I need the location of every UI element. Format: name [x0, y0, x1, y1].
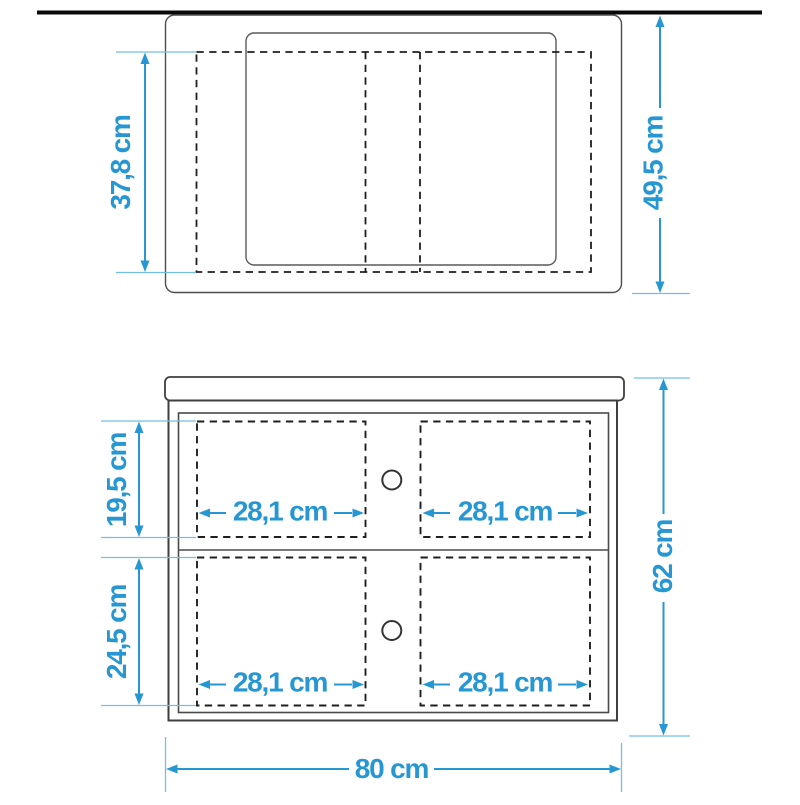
svg-text:37,8 cm: 37,8 cm — [105, 115, 136, 210]
svg-text:28,1 cm: 28,1 cm — [458, 667, 553, 698]
svg-text:28,1 cm: 28,1 cm — [458, 496, 553, 527]
svg-text:80 cm: 80 cm — [355, 753, 429, 784]
svg-text:19,5 cm: 19,5 cm — [101, 433, 132, 528]
svg-text:24,5 cm: 24,5 cm — [101, 585, 132, 680]
svg-text:28,1 cm: 28,1 cm — [233, 496, 328, 527]
svg-text:28,1 cm: 28,1 cm — [233, 667, 328, 698]
svg-text:49,5 cm: 49,5 cm — [638, 116, 669, 211]
svg-text:62 cm: 62 cm — [647, 520, 678, 594]
